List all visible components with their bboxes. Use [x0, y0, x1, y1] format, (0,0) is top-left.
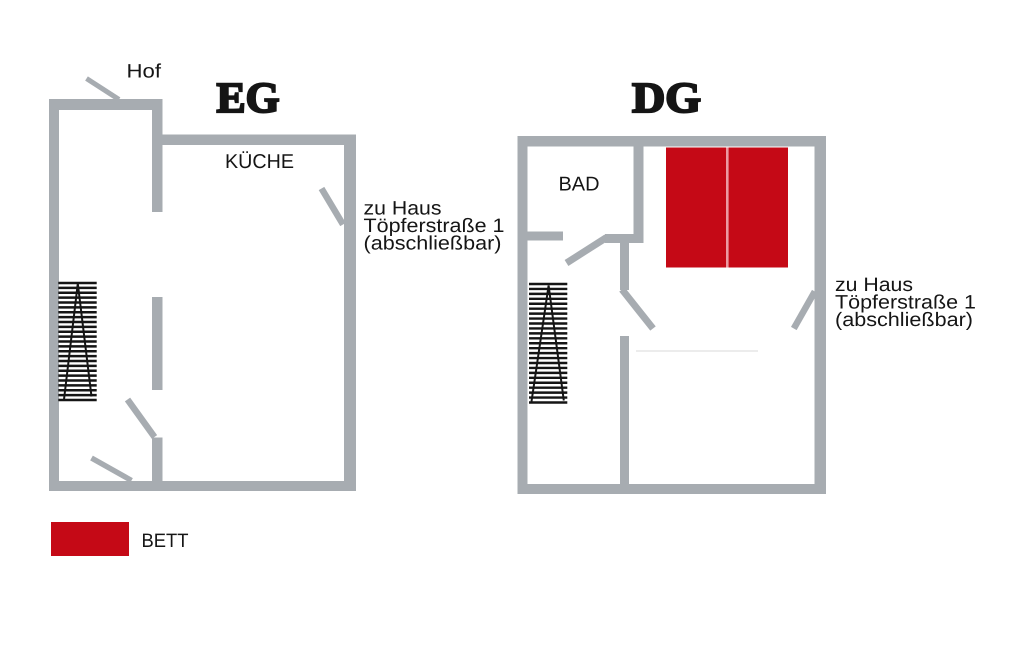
svg-text:BAD: BAD — [559, 174, 600, 196]
svg-text:EG: EG — [217, 75, 280, 122]
svg-text:KÜCHE: KÜCHE — [225, 151, 294, 173]
svg-text:BETT: BETT — [142, 530, 189, 552]
svg-text:DG: DG — [632, 75, 701, 122]
svg-text:(abschließbar): (abschließbar) — [364, 233, 502, 255]
svg-text:Hof: Hof — [127, 61, 162, 83]
svg-text:(abschließbar): (abschließbar) — [835, 309, 973, 331]
